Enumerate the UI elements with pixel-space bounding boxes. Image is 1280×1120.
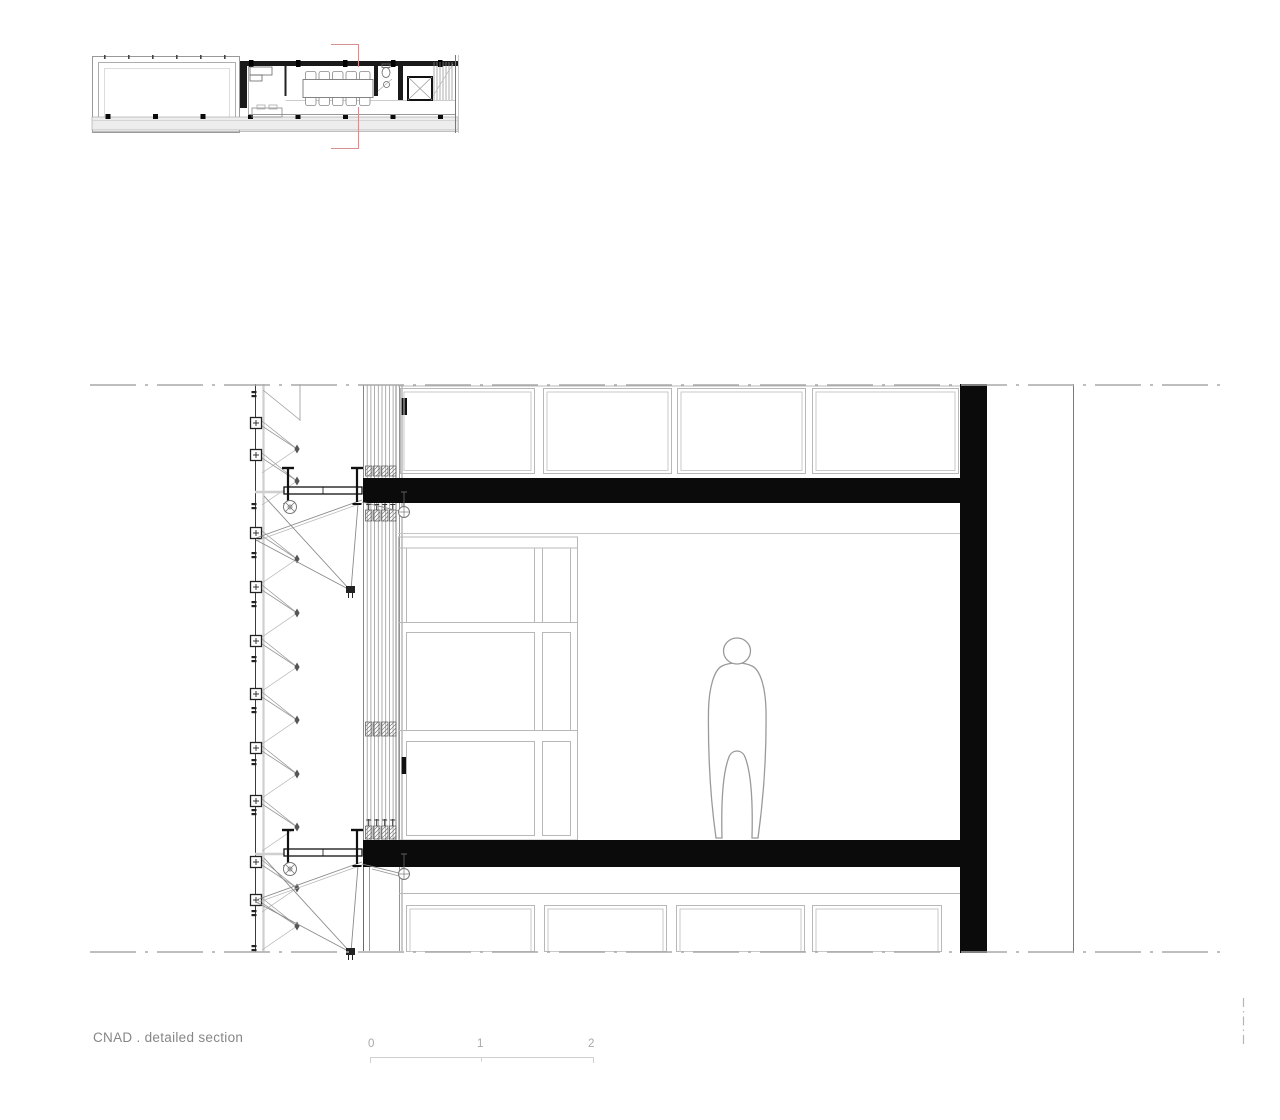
plan-bathroom [374, 64, 403, 100]
drawing-canvas: CNAD . detailed section 0 1 2 [0, 0, 1280, 1120]
plan-office-furniture [250, 67, 282, 117]
plan-top-wall [240, 61, 458, 66]
scale-tick-1: 1 [477, 1038, 483, 1050]
structural-cut [363, 384, 987, 953]
human-figure [708, 638, 766, 838]
upper-floor-beam [363, 478, 987, 503]
mast-top-strut [263, 390, 300, 420]
upper-window-band [398, 386, 960, 474]
detailed-section-drawing [90, 384, 1244, 1048]
drawing-sheet: CNAD . detailed section 0 1 2 [0, 0, 1280, 1120]
scale-bar: 0 1 2 [368, 1038, 594, 1063]
floor-plan-thumbnail [92, 45, 459, 150]
glazed-partition [399, 537, 578, 840]
scale-tick-0: 0 [368, 1038, 374, 1050]
plan-meeting-table [303, 72, 373, 106]
louver-stack [364, 385, 397, 840]
lower-floor-beam [363, 840, 987, 867]
scale-tick-2: 2 [588, 1038, 594, 1050]
drawing-title: CNAD . detailed section [93, 1030, 243, 1045]
plan-elevator [408, 77, 432, 100]
lower-window-band [364, 867, 961, 952]
plan-stairs [433, 62, 453, 100]
louver-connector-blocks [366, 466, 397, 839]
structural-column [960, 384, 987, 953]
